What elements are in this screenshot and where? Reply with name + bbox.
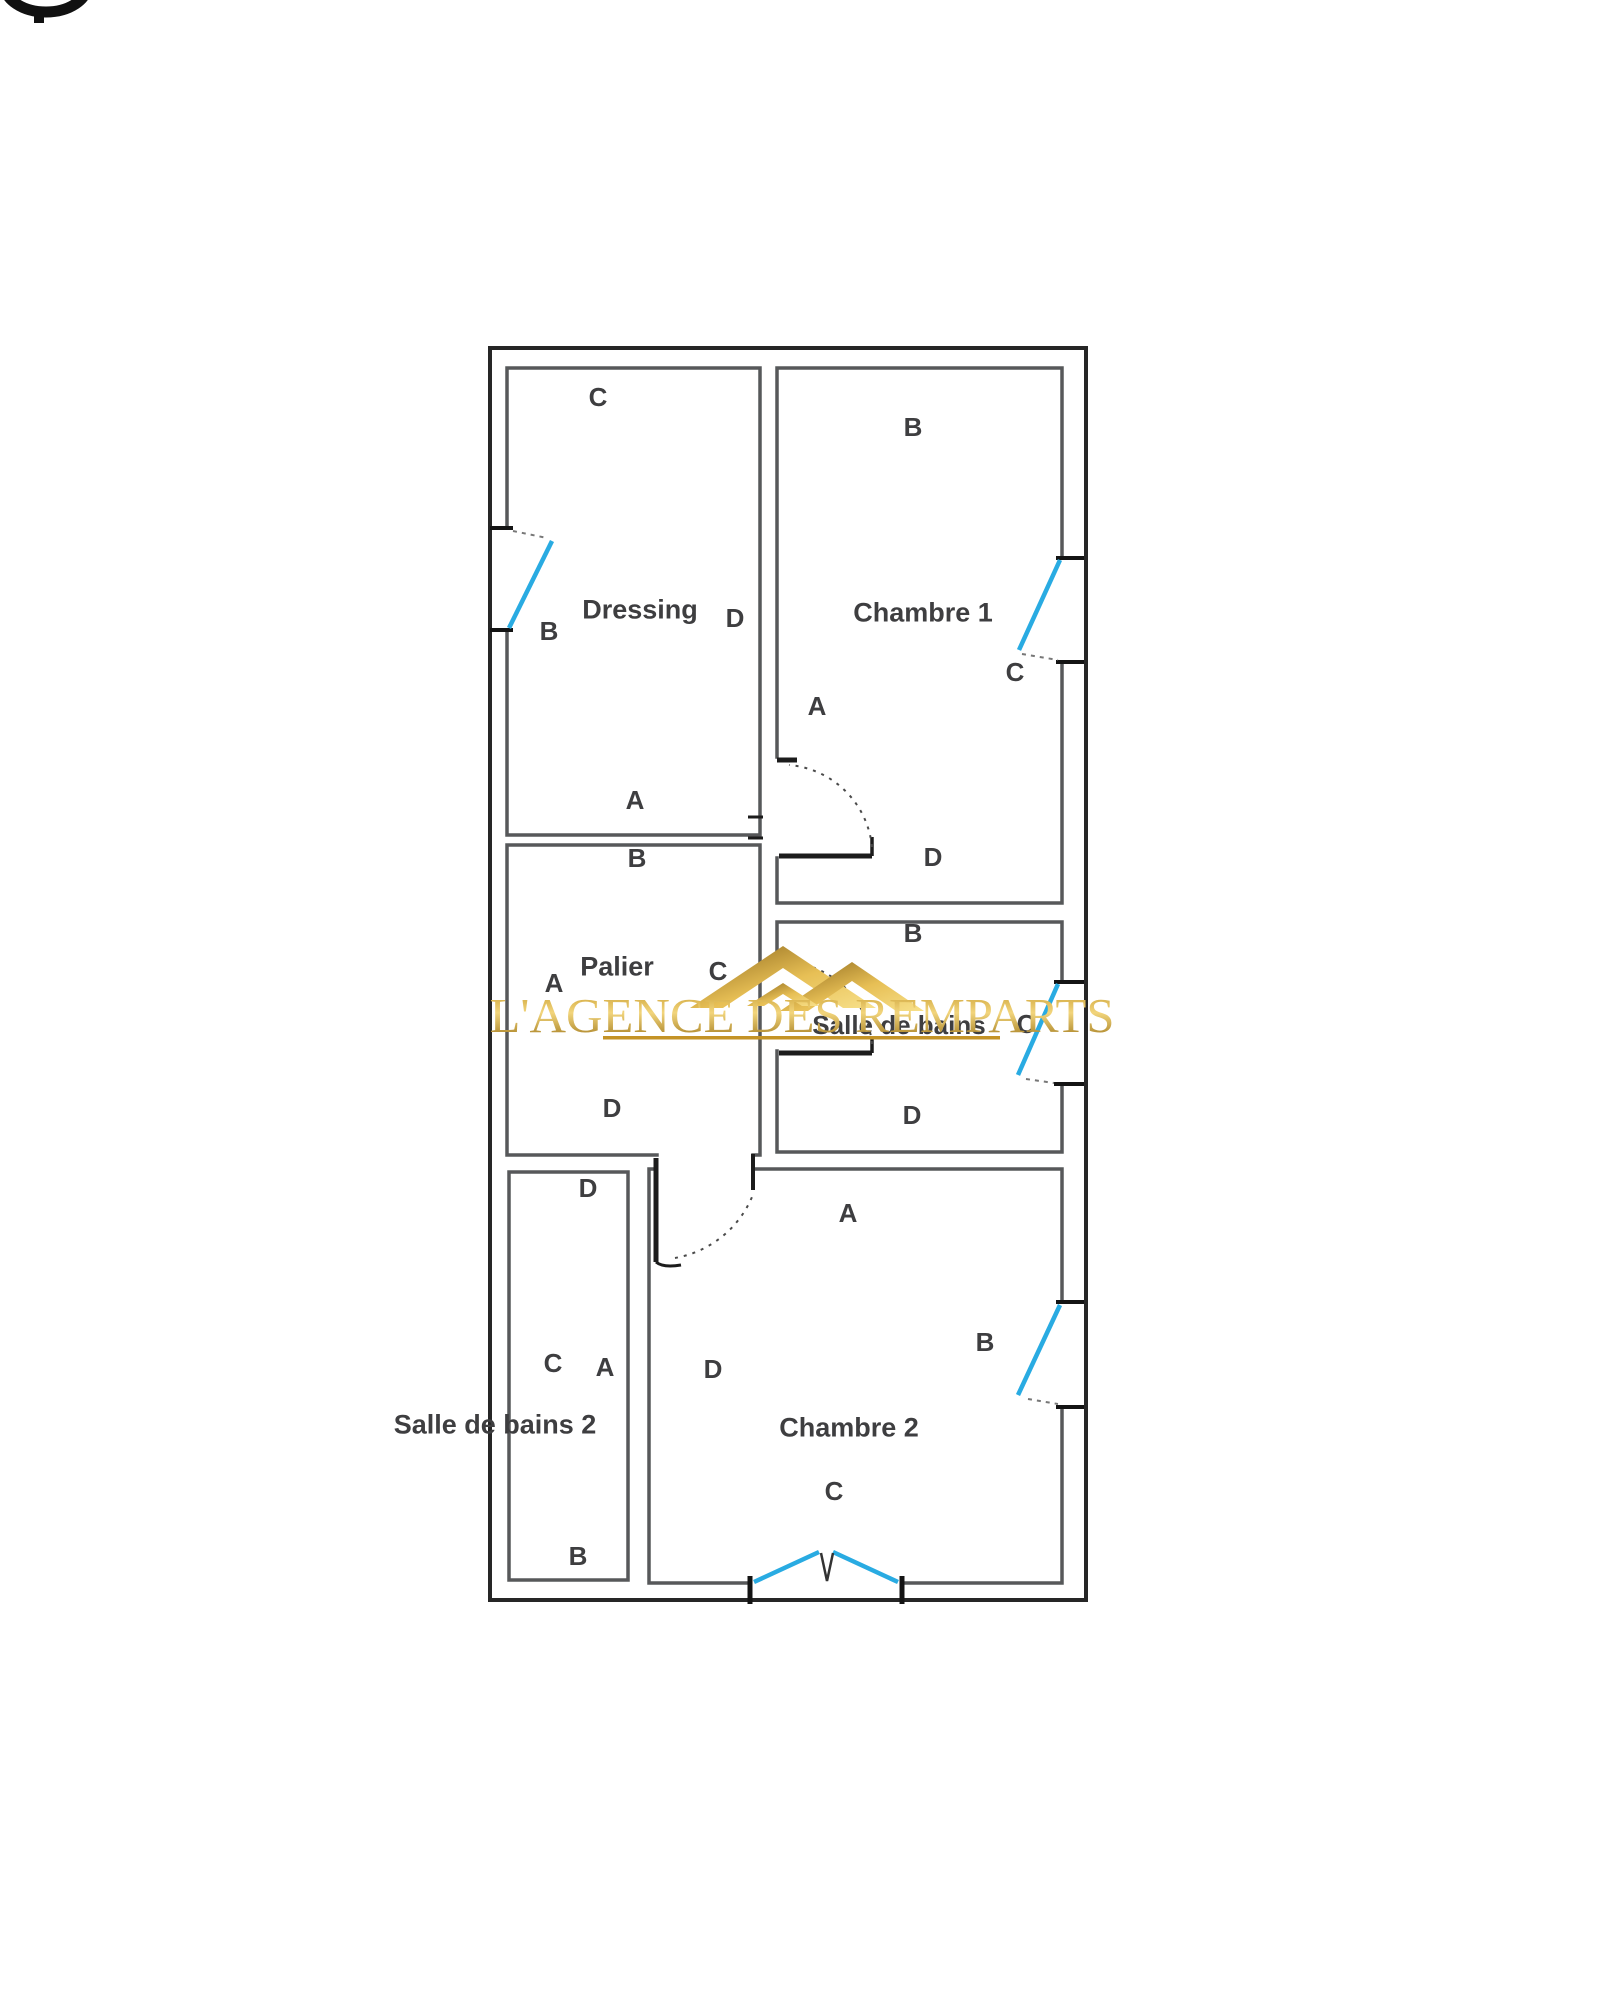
wall-letter-salle-de-bains-c: C xyxy=(1017,1011,1036,1037)
wall-letter-dressing-d: D xyxy=(726,605,745,631)
room-label-salle-de-bains-2: Salle de bains 2 xyxy=(394,1412,597,1439)
floor-plan-page: Dressing C B D A Chambre 1 B A C D Palie… xyxy=(0,0,1600,1999)
wall-letter-chambre2-c: C xyxy=(825,1478,844,1504)
wall-letter-salle-de-bains-d: D xyxy=(903,1102,922,1128)
wall-letter-chambre2-d: D xyxy=(704,1356,723,1382)
wall-letter-dressing-c: C xyxy=(589,384,608,410)
wall-letter-chambre1-d: D xyxy=(924,844,943,870)
wall-letter-chambre1-c: C xyxy=(1006,659,1025,685)
wall-letter-palier-a: A xyxy=(545,970,564,996)
room-label-chambre1: Chambre 1 xyxy=(853,600,993,627)
wall-letter-dressing-b: B xyxy=(540,618,559,644)
wall-letter-palier-d: D xyxy=(603,1095,622,1121)
room-label-salle-de-bains: Salle de bains xyxy=(812,1012,985,1038)
room-label-palier: Palier xyxy=(580,954,654,981)
wall-letter-salle-de-bains-2-d: D xyxy=(579,1175,598,1201)
wall-letter-palier-c: C xyxy=(709,958,728,984)
wall-letter-chambre2-b: B xyxy=(976,1329,995,1355)
wall-letter-salle-de-bains-2-c: C xyxy=(544,1350,563,1376)
wall-letter-chambre1-b: B xyxy=(904,414,923,440)
wall-letter-salle-de-bains-b: B xyxy=(904,920,923,946)
room-label-chambre2: Chambre 2 xyxy=(779,1415,919,1442)
wall-letter-chambre1-a: A xyxy=(808,693,827,719)
wall-letter-salle-de-bains-2-b: B xyxy=(569,1543,588,1569)
wall-letter-palier-b: B xyxy=(628,845,647,871)
labels-layer: Dressing C B D A Chambre 1 B A C D Palie… xyxy=(0,0,1600,1999)
wall-letter-dressing-a: A xyxy=(626,787,645,813)
wall-letter-chambre2-a: A xyxy=(839,1200,858,1226)
room-label-dressing: Dressing xyxy=(582,597,698,624)
wall-letter-salle-de-bains-2-a: A xyxy=(596,1354,615,1380)
